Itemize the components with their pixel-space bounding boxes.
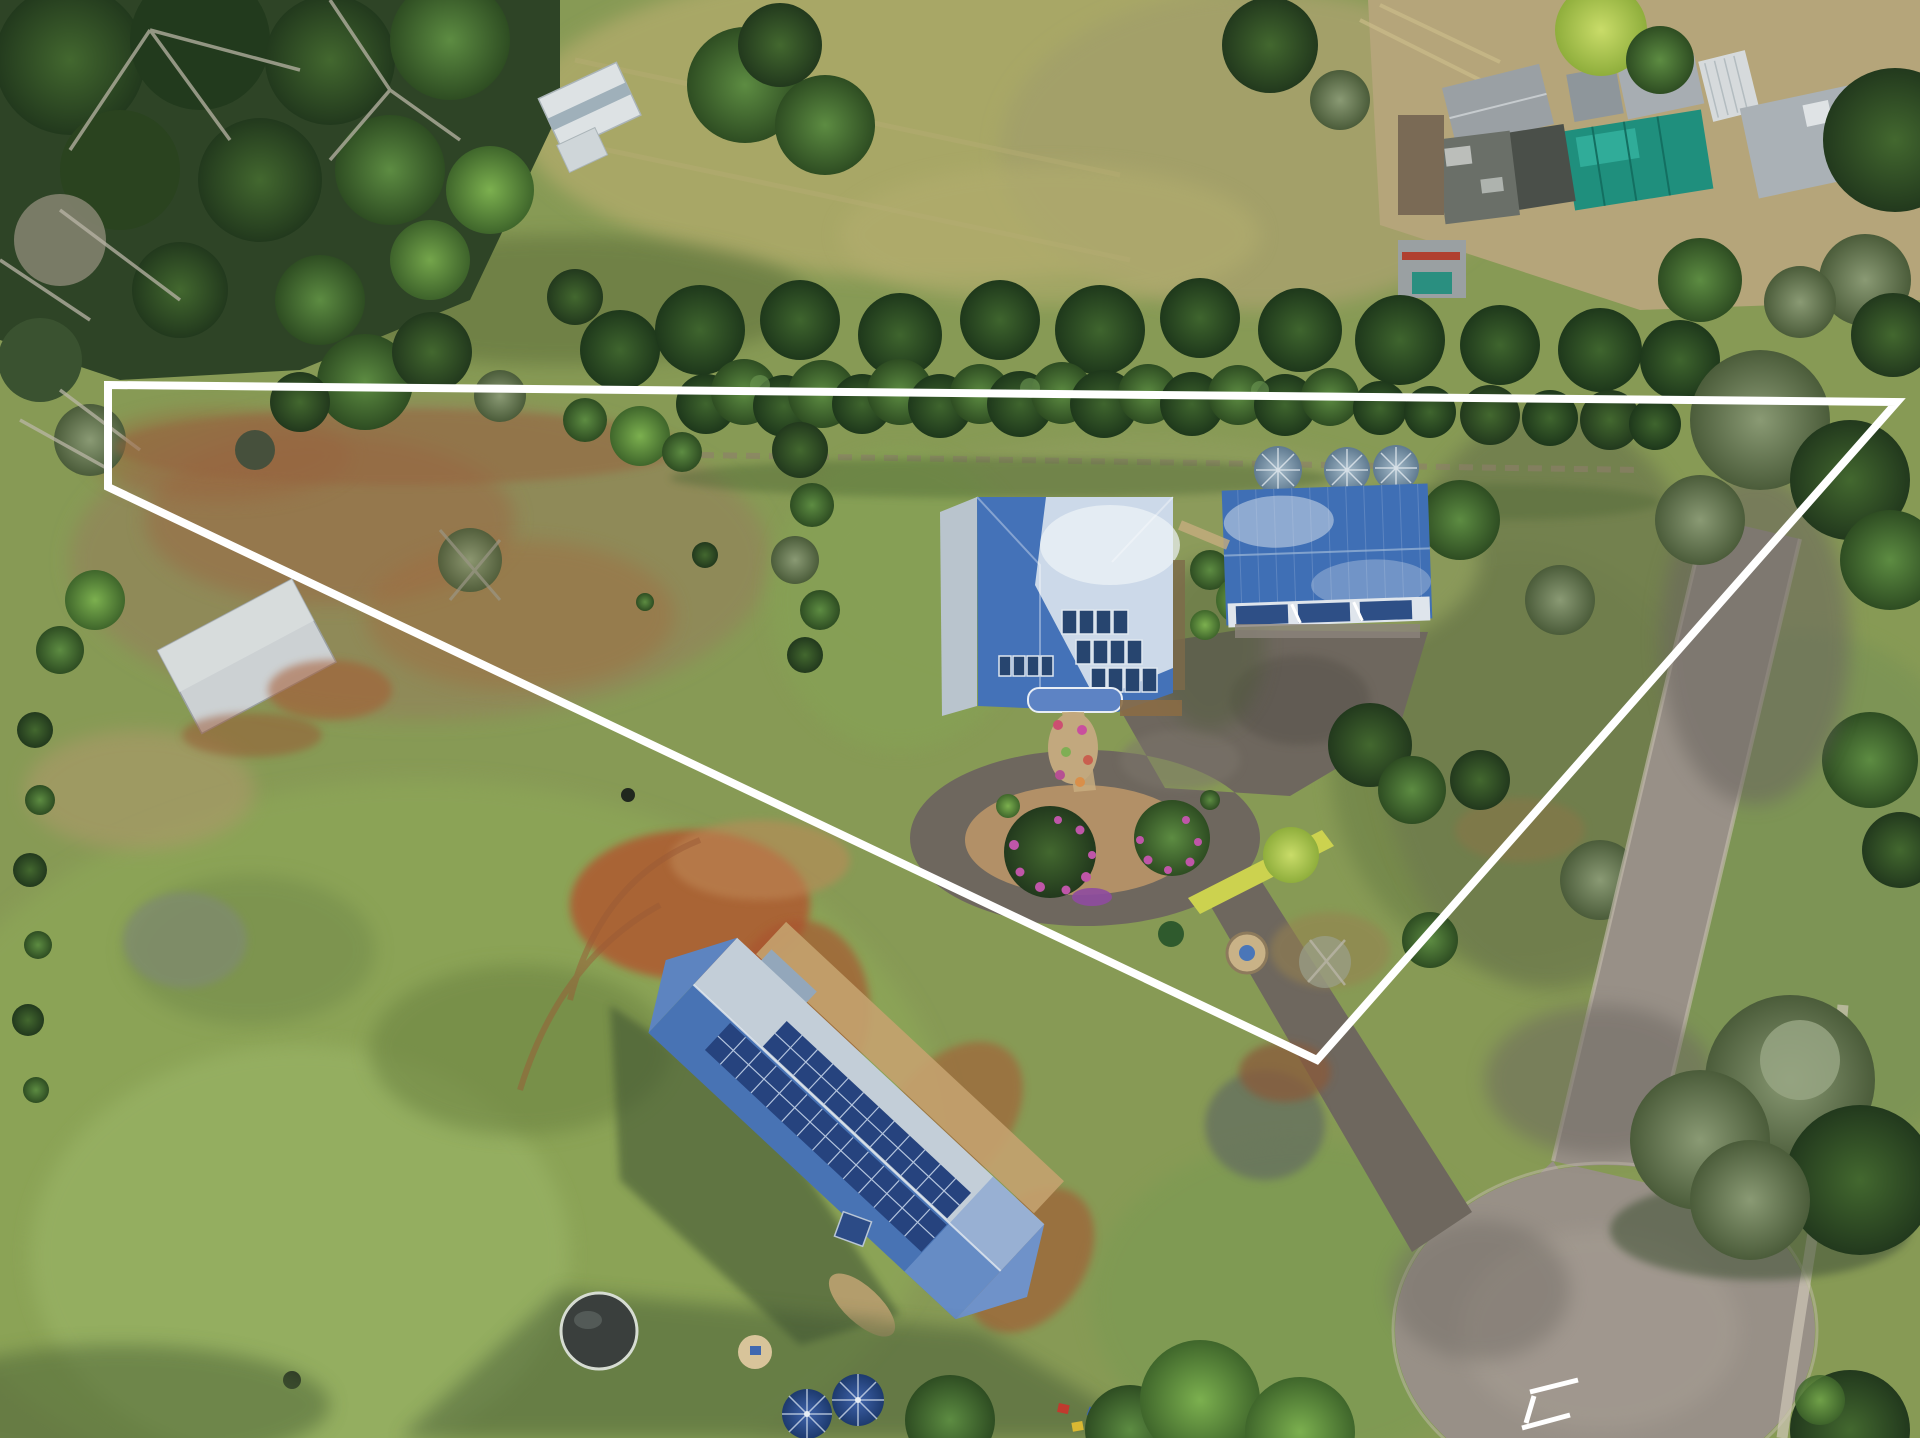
roof-west-strip bbox=[940, 497, 977, 716]
conifer bbox=[1158, 921, 1184, 947]
shrub-mound bbox=[1004, 806, 1096, 898]
lime-tree bbox=[1263, 827, 1319, 883]
dark-object bbox=[621, 788, 635, 802]
pool bbox=[561, 1293, 637, 1369]
blue-shed bbox=[1222, 483, 1433, 627]
trailer-stack bbox=[1398, 240, 1466, 298]
sandpit bbox=[738, 1335, 772, 1369]
fire-pit bbox=[1227, 933, 1267, 973]
aerial-photo bbox=[0, 0, 1920, 1438]
umbrella bbox=[832, 1374, 884, 1426]
umbrella bbox=[782, 1389, 832, 1438]
bullnose-veranda bbox=[1028, 688, 1122, 712]
shrub-mound bbox=[1134, 800, 1210, 876]
deck bbox=[1120, 700, 1182, 716]
metal-stack bbox=[1435, 131, 1520, 225]
rusty-stack bbox=[1398, 115, 1444, 215]
